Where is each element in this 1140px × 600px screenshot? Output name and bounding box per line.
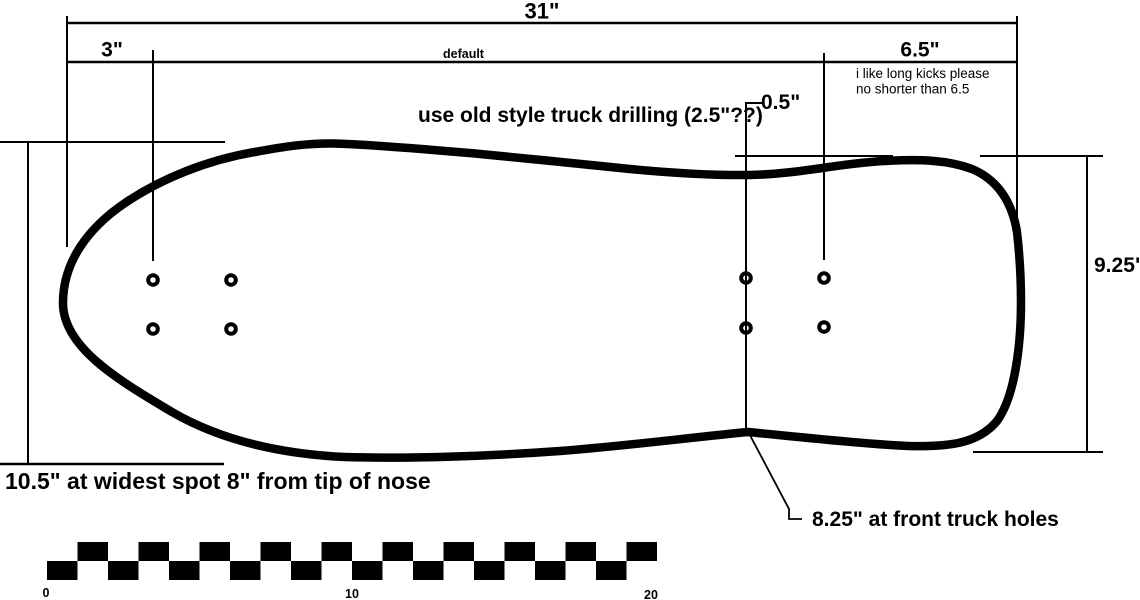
scale-square	[108, 561, 139, 580]
widest-note: 10.5" at widest spot 8" from tip of nose	[5, 468, 431, 494]
scale-square	[474, 561, 505, 580]
skateboard-template-diagram: 31" 3" default 6.5" i like long kicks pl…	[0, 0, 1140, 600]
truck-hole	[148, 324, 158, 334]
scale-square	[322, 542, 353, 561]
scale-square	[444, 542, 475, 561]
scale-square	[535, 561, 566, 580]
scale-square	[383, 542, 414, 561]
scale-square	[230, 561, 261, 580]
scale-square	[352, 561, 383, 580]
scale-square	[596, 561, 627, 580]
scale-square	[505, 542, 536, 561]
width-label: 9.25"	[1094, 254, 1140, 277]
nose-length-label: 3"	[101, 39, 123, 62]
truck-hole	[819, 322, 829, 332]
scale-square	[413, 561, 444, 580]
scale-tick-0: 0	[43, 586, 50, 600]
total-length-label: 31"	[525, 0, 560, 24]
scale-bar-checkerboard	[47, 542, 657, 580]
truck-hole	[226, 324, 236, 334]
scale-square	[566, 542, 597, 561]
scale-square	[169, 561, 200, 580]
scale-square	[627, 542, 658, 561]
scale-square	[139, 542, 170, 561]
front-truck-note: 8.25" at front truck holes	[812, 508, 1059, 531]
truck-hole	[226, 275, 236, 285]
deck-outline	[63, 143, 1021, 457]
scale-square	[261, 542, 292, 561]
rear-truck-holes	[148, 275, 236, 334]
drilling-note: use old style truck drilling (2.5"??)	[418, 104, 763, 127]
front-truck-holes	[741, 273, 829, 333]
truck-hole	[819, 273, 829, 283]
scale-square	[200, 542, 231, 561]
front-truck-leader-line	[748, 432, 802, 520]
scale-tick-20: 20	[644, 588, 658, 600]
dip-label: 0.5"	[761, 91, 800, 114]
scale-square	[291, 561, 322, 580]
scale-square	[78, 542, 109, 561]
dip-bracket-and-front-truck-line	[746, 103, 763, 432]
scale-tick-10: 10	[345, 587, 359, 600]
kick-note-line1: i like long kicks please	[856, 66, 990, 81]
default-label: default	[443, 47, 485, 61]
scale-square	[47, 561, 78, 580]
tail-length-label: 6.5"	[900, 39, 939, 62]
kick-note-line2: no shorter than 6.5	[856, 82, 969, 97]
truck-hole	[148, 275, 158, 285]
